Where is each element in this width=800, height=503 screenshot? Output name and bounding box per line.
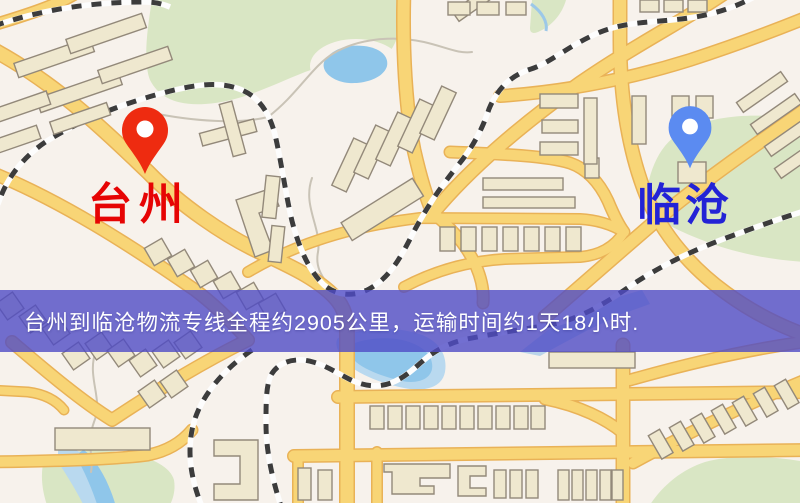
destination-label: 临沧	[637, 181, 733, 230]
route-info-text: 台州到临沧物流专线全程约2905公里，运输时间约1天18小时.	[24, 306, 639, 337]
map-canvas[interactable]: 台州 临沧 台州到临沧物流专线全程约2905公里，运输时间约1天18小时.	[0, 0, 800, 503]
origin-label: 台州	[88, 180, 190, 229]
map-image: 台州 临沧	[0, 0, 800, 503]
route-info-banner: 台州到临沧物流专线全程约2905公里，运输时间约1天18小时.	[0, 290, 800, 352]
